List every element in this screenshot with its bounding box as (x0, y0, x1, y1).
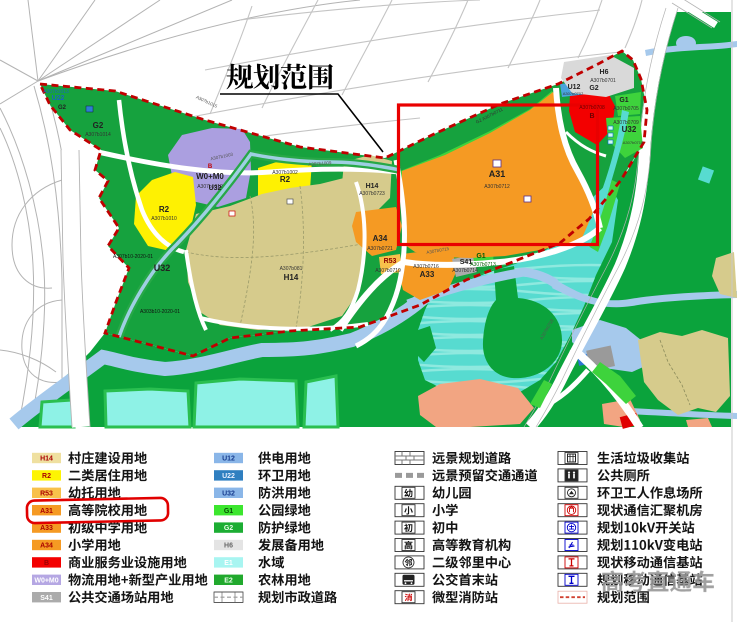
svg-text:B: B (44, 560, 49, 567)
svg-text:G2: G2 (589, 85, 598, 92)
svg-text:A307b0712: A307b0712 (484, 184, 510, 190)
svg-text:G2: G2 (93, 121, 104, 130)
svg-text:U12: U12 (222, 456, 235, 463)
svg-text:R53: R53 (40, 490, 53, 497)
svg-text:A307b1014: A307b1014 (85, 132, 111, 138)
svg-text:A307b0707: A307b0707 (563, 91, 584, 96)
svg-text:U32: U32 (209, 185, 222, 192)
svg-text:G2: G2 (58, 105, 67, 111)
svg-text:A31: A31 (40, 508, 53, 515)
svg-text:R2: R2 (42, 473, 51, 480)
svg-text:A307b0721: A307b0721 (367, 246, 393, 252)
svg-text:B: B (208, 164, 213, 170)
svg-text:A307b0713: A307b0713 (470, 262, 496, 268)
svg-text:E2: E2 (224, 577, 233, 584)
svg-text:A307b0714: A307b0714 (452, 268, 478, 274)
svg-text:U32: U32 (154, 263, 171, 273)
svg-text:A307b0705: A307b0705 (613, 106, 639, 112)
svg-text:A33: A33 (420, 270, 435, 279)
svg-text:A307b0723: A307b0723 (359, 191, 385, 197)
svg-text:A31: A31 (489, 169, 506, 179)
svg-text:H6: H6 (224, 543, 233, 550)
svg-text:H14: H14 (366, 183, 379, 190)
svg-text:A34: A34 (373, 234, 388, 243)
svg-text:U22: U22 (222, 473, 235, 480)
svg-text:H14: H14 (40, 456, 53, 463)
svg-text:A307b081: A307b081 (280, 266, 303, 272)
svg-text:A33: A33 (40, 525, 53, 532)
svg-text:S41: S41 (40, 595, 53, 602)
svg-text:B: B (589, 113, 594, 120)
svg-text:R2: R2 (159, 205, 170, 214)
svg-text:U32: U32 (222, 490, 235, 497)
svg-text:A307b0710: A307b0710 (623, 140, 644, 145)
svg-text:W0+M0: W0+M0 (196, 172, 224, 181)
svg-text:U12: U12 (568, 84, 581, 91)
svg-text:H14: H14 (284, 273, 299, 282)
svg-text:H6: H6 (600, 69, 609, 76)
svg-text:A307b10-2020-01: A307b10-2020-01 (113, 254, 153, 260)
svg-text:A307b1013: A307b1013 (43, 89, 69, 95)
svg-text:W0+M0: W0+M0 (34, 577, 58, 584)
svg-text:A307b0709: A307b0709 (613, 120, 639, 126)
svg-text:E1: E1 (224, 560, 233, 567)
svg-text:A307b1010: A307b1010 (151, 216, 177, 222)
svg-text:A307b0719: A307b0719 (375, 268, 401, 274)
svg-text:G1: G1 (476, 253, 485, 260)
svg-text:G2: G2 (224, 525, 233, 532)
svg-text:A307b0701: A307b0701 (590, 78, 616, 84)
svg-text:R53: R53 (384, 258, 397, 265)
svg-text:R2: R2 (280, 175, 291, 184)
svg-text:A303b10-2020-01: A303b10-2020-01 (140, 309, 180, 315)
svg-text:G1: G1 (224, 508, 233, 515)
svg-text:A34: A34 (40, 543, 53, 550)
svg-text:U22: U22 (52, 95, 65, 102)
svg-text:G1: G1 (619, 97, 628, 104)
svg-text:U32: U32 (622, 125, 637, 134)
svg-text:A307b0708: A307b0708 (579, 105, 605, 111)
